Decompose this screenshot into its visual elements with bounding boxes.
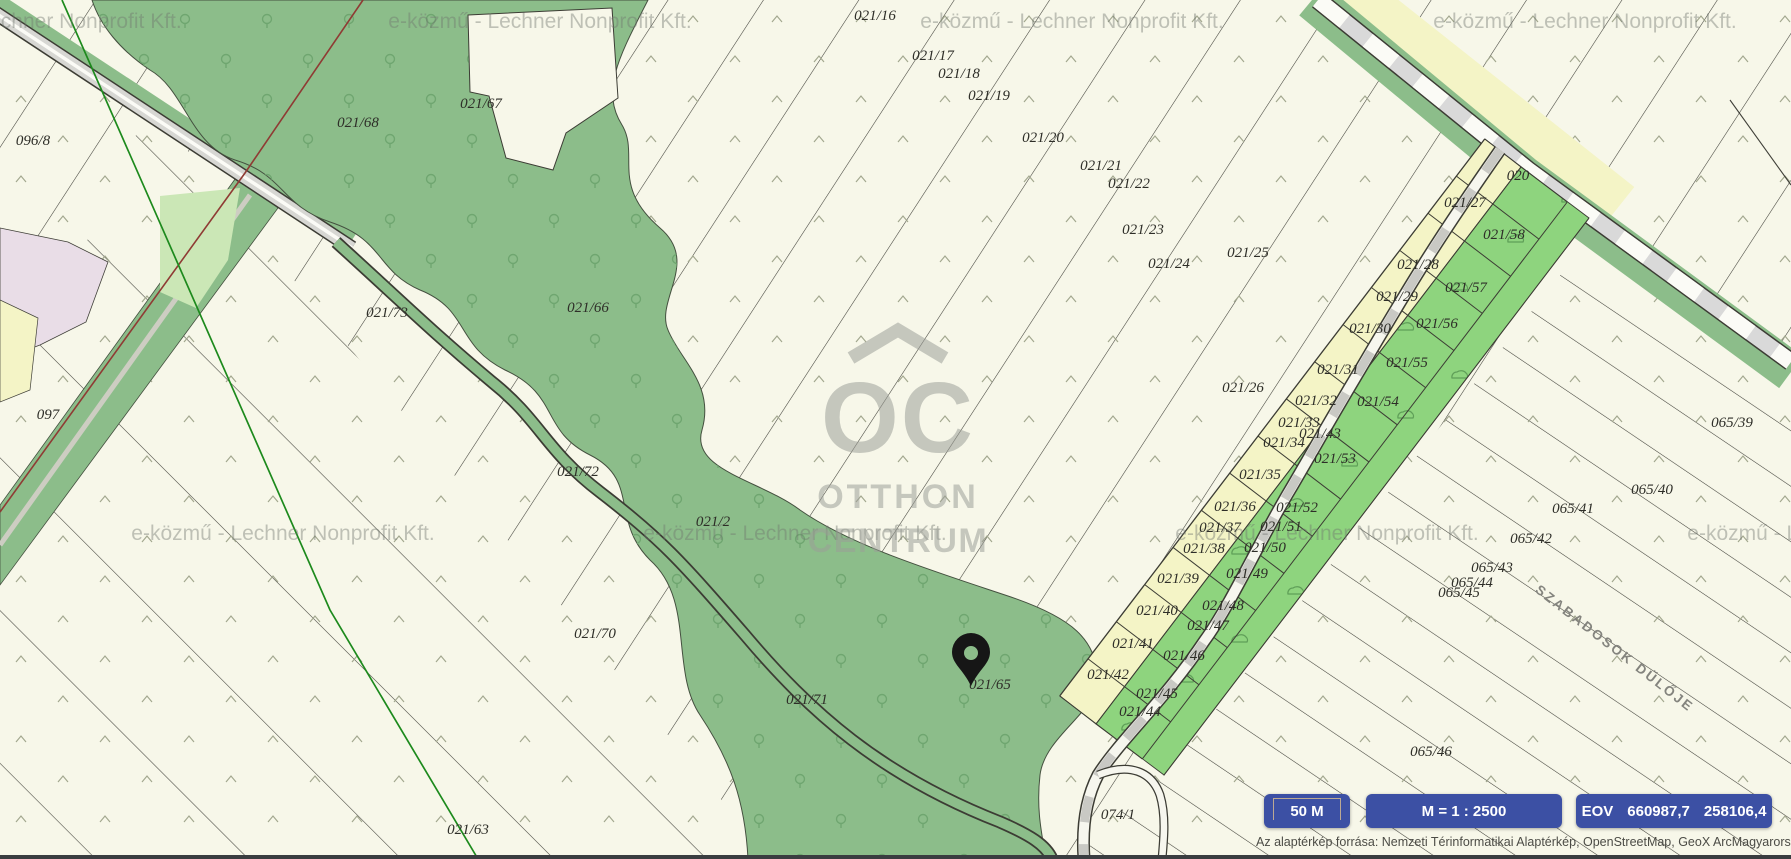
parcel-label: 097 bbox=[37, 407, 61, 423]
parcel-label: 021/54 bbox=[1357, 394, 1399, 410]
parcel-label: 096/8 bbox=[16, 133, 51, 149]
watermark-text: e-közmű - Lechner Nonprofit Kft. bbox=[1687, 522, 1791, 545]
logo-line2: CENTRUM bbox=[808, 522, 988, 560]
parcel-label: 021/70 bbox=[574, 626, 616, 642]
parcel-label: 021/32 bbox=[1295, 393, 1337, 409]
map-viewport[interactable]: e-közmű - Lechner Nonprofit Kft.e-közmű … bbox=[0, 0, 1791, 859]
parcel-label: 065/45 bbox=[1438, 585, 1480, 601]
watermark-text: e-közmű - Lechner Nonprofit Kft. bbox=[0, 10, 182, 33]
scale-ratio-label: M = 1 : 2500 bbox=[1422, 803, 1507, 820]
cadastral-map-canvas[interactable]: e-közmű - Lechner Nonprofit Kft.e-közmű … bbox=[0, 0, 1791, 859]
parcel-label: 074/1 bbox=[1101, 807, 1135, 823]
parcel-label: 021/55 bbox=[1386, 355, 1428, 371]
parcel-label: 021/18 bbox=[938, 66, 980, 82]
watermark-text: e-közmű - Lechner Nonprofit Kft. bbox=[388, 10, 691, 33]
parcel-label: 020 bbox=[1507, 168, 1530, 184]
parcel-label: 021/24 bbox=[1148, 256, 1190, 272]
parcel-label: 021/21 bbox=[1080, 158, 1122, 174]
parcel-label: 065/40 bbox=[1631, 482, 1673, 498]
parcel-label: 065/39 bbox=[1711, 415, 1753, 431]
logo-monogram: OC bbox=[821, 362, 975, 474]
parcel-label: 021/22 bbox=[1108, 176, 1150, 192]
parcel-label: 021/49 bbox=[1226, 566, 1268, 582]
parcel-label: 021/43 bbox=[1299, 426, 1341, 442]
eov-system-label: EOV bbox=[1582, 803, 1614, 820]
otthon-centrum-logo: OC OTTHON CENTRUM bbox=[808, 330, 988, 560]
watermark-text: e-közmű - Lechner Nonprofit Kft. bbox=[131, 522, 434, 545]
parcel-label: 021/31 bbox=[1317, 362, 1359, 378]
parcel-label: 021/52 bbox=[1276, 500, 1318, 516]
eov-coordinates-button[interactable]: EOV 660987,7 258106,4 bbox=[1576, 794, 1772, 828]
scale-bar-button[interactable]: 50 M bbox=[1264, 794, 1350, 828]
parcel-label: 021/44 bbox=[1119, 704, 1161, 720]
parcel-label: 021/27 bbox=[1444, 195, 1487, 211]
parcel-label: 021/41 bbox=[1112, 636, 1154, 652]
parcel-label: 021/51 bbox=[1260, 519, 1302, 535]
parcel-label: 021/29 bbox=[1376, 289, 1418, 305]
parcel-label: 021/40 bbox=[1136, 603, 1178, 619]
parcel-label: 021/67 bbox=[460, 96, 503, 112]
parcel-label: 021/2 bbox=[696, 514, 731, 530]
parcel-label: 021/26 bbox=[1222, 380, 1264, 396]
parcel-label: 021/68 bbox=[337, 115, 379, 131]
scale-bar-bracket bbox=[1273, 798, 1341, 820]
parcel-label: 065/46 bbox=[1410, 744, 1452, 760]
parcel-label: 021/25 bbox=[1227, 245, 1269, 261]
parcel-label: 021/45 bbox=[1136, 686, 1178, 702]
parcel-label: 021/57 bbox=[1445, 280, 1488, 296]
parcel-label: 021/56 bbox=[1416, 316, 1458, 332]
parcel-label: 021/53 bbox=[1314, 451, 1356, 467]
parcel-label: 021/48 bbox=[1202, 598, 1244, 614]
eov-y-value: 258106,4 bbox=[1704, 803, 1767, 820]
parcel-label: 021/39 bbox=[1157, 571, 1199, 587]
parcel-label: 021/37 bbox=[1199, 520, 1242, 536]
parcel-label: 021/47 bbox=[1187, 618, 1230, 634]
parcel-label: 021/42 bbox=[1087, 667, 1129, 683]
parcel-label: 021/30 bbox=[1349, 321, 1391, 337]
watermark-text: e-közmű - Lechner Nonprofit Kft. bbox=[920, 10, 1223, 33]
parcel-label: 021/35 bbox=[1239, 467, 1281, 483]
parcel-label: 021/19 bbox=[968, 88, 1010, 104]
parcel-label: 021/73 bbox=[366, 305, 408, 321]
parcel-label: 021/38 bbox=[1183, 541, 1225, 557]
parcel-label: 021/66 bbox=[567, 300, 609, 316]
parcel-label: 065/43 bbox=[1471, 560, 1513, 576]
parcel-label: 021/58 bbox=[1483, 227, 1525, 243]
parcel-label: 021/23 bbox=[1122, 222, 1164, 238]
parcel-label: 021/71 bbox=[786, 692, 828, 708]
eov-x-value: 660987,7 bbox=[1627, 803, 1690, 820]
parcel-label: 065/41 bbox=[1552, 501, 1594, 517]
parcel-label: 021/65 bbox=[969, 677, 1011, 693]
parcel-label: 021/28 bbox=[1397, 257, 1439, 273]
parcel-label: 021/16 bbox=[854, 8, 896, 24]
parcel-label: 021/46 bbox=[1163, 648, 1205, 664]
bottom-edge-bar bbox=[0, 855, 1791, 859]
parcel-label: 021/63 bbox=[447, 822, 489, 838]
parcel-label: 065/42 bbox=[1510, 531, 1552, 547]
watermark-text: e-közmű - Lechner Nonprofit Kft. bbox=[1433, 10, 1736, 33]
map-attribution: Az alaptérkép forrása: Nemzeti Térinform… bbox=[1256, 835, 1791, 849]
parcel-label: 021/50 bbox=[1244, 540, 1286, 556]
scale-ratio-button[interactable]: M = 1 : 2500 bbox=[1366, 794, 1562, 828]
parcel-label: 021/36 bbox=[1214, 499, 1256, 515]
logo-line1: OTTHON bbox=[817, 478, 979, 516]
parcel-label: 021/72 bbox=[557, 464, 599, 480]
parcel-label: 021/20 bbox=[1022, 130, 1064, 146]
parcel-label: 021/17 bbox=[912, 48, 955, 64]
